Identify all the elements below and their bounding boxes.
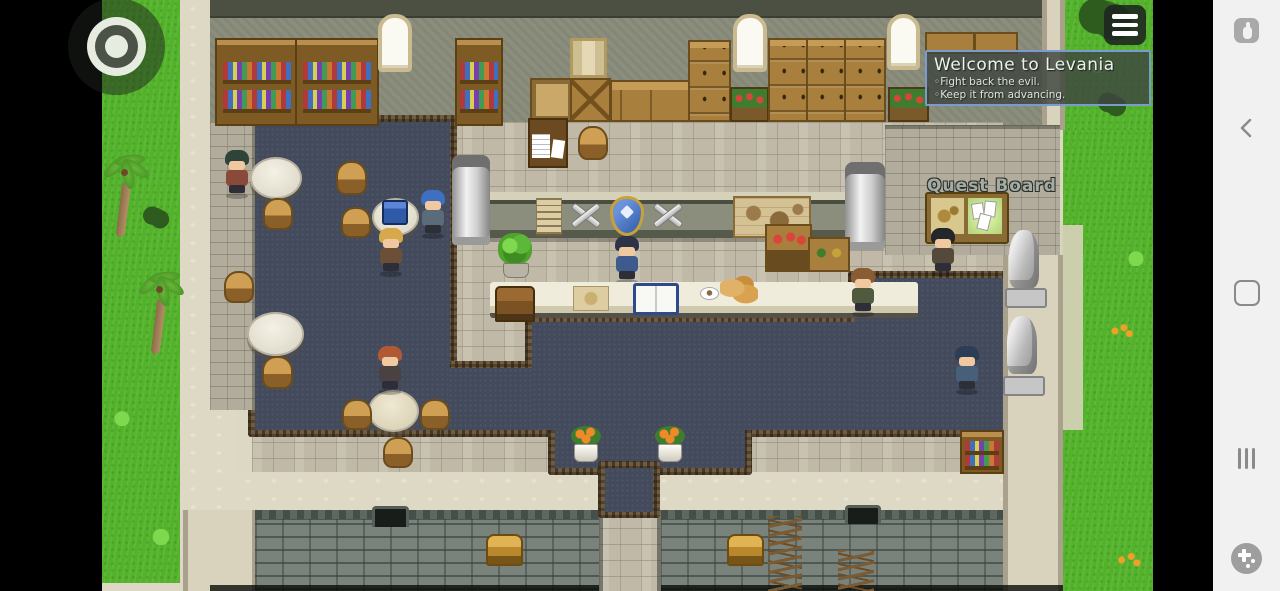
crate: [530, 78, 574, 122]
round-table: [247, 312, 304, 356]
npc-blue-soldier[interactable]: [418, 190, 448, 236]
stool: [262, 356, 293, 389]
counter-chest: [495, 286, 535, 322]
pot: [503, 263, 529, 278]
hamburger-menu-icon: [1112, 14, 1138, 19]
orange-flowers: [1106, 320, 1136, 342]
paper-sheet: [551, 139, 565, 158]
treasure-chest[interactable]: [727, 534, 764, 566]
palm-tree: [105, 155, 141, 241]
flower-box: [730, 87, 769, 122]
carpet: [448, 368, 532, 430]
game-viewport[interactable]: Quest Board Welcome to Levania ◦Fight ba…: [102, 0, 1153, 591]
crossed-swords: [648, 198, 688, 234]
message-popup-line: ◦Fight back the evil.: [934, 76, 1142, 88]
stool: [336, 161, 367, 195]
grass-tuft: [148, 525, 174, 545]
npc-redhead-patron[interactable]: [375, 346, 405, 392]
crossed-swords: [566, 198, 606, 234]
stool: [263, 198, 293, 230]
back-chevron-icon[interactable]: [1213, 112, 1280, 144]
south-wall-left: [183, 510, 257, 591]
joystick-center-dot: [105, 35, 128, 58]
open-shelf: [570, 38, 607, 78]
grass-tuft: [110, 408, 134, 426]
flower-pot: [653, 426, 686, 466]
stool: [224, 271, 254, 303]
bookshelf: [295, 38, 379, 126]
papers: [532, 134, 550, 158]
flower-box: [888, 87, 929, 122]
npc-brown-hair[interactable]: [848, 268, 878, 314]
bush: [498, 233, 532, 265]
touch-pointer-icon[interactable]: [1213, 15, 1280, 45]
npc-villager[interactable]: [222, 150, 252, 196]
stool: [341, 207, 371, 238]
message-popup-line: ◦Keep it from advancing.: [934, 89, 1142, 101]
palm-tree: [140, 272, 176, 358]
screen: Quest Board Welcome to Levania ◦Fight ba…: [0, 0, 1280, 591]
message-popup: Welcome to Levania ◦Fight back the evil.…: [925, 50, 1151, 106]
knight-statue: [1001, 316, 1045, 396]
dresser: [768, 38, 810, 122]
vines: [768, 516, 802, 591]
letterbox-right: [1153, 0, 1213, 591]
bookshelf: [215, 38, 299, 126]
knight-statue: [1003, 230, 1047, 308]
potted-bush: [498, 233, 532, 278]
round-table: [368, 390, 419, 432]
hamburger-menu-button[interactable]: [1104, 5, 1146, 45]
sand-strip: [1061, 225, 1083, 430]
stool: [342, 399, 372, 430]
treasure-chest[interactable]: [486, 534, 523, 566]
window: [733, 14, 767, 72]
quest-board-papers-panel: [968, 198, 1002, 234]
south-doorway: [599, 512, 661, 591]
wall-opening: [372, 506, 409, 527]
stool: [383, 437, 413, 468]
message-popup-title: Welcome to Levania: [934, 55, 1142, 75]
barn-door: [570, 78, 611, 122]
goods-crate: [765, 224, 812, 272]
item-shelf: [688, 40, 731, 122]
player-character[interactable]: [952, 346, 982, 392]
home-circle-icon[interactable]: [1213, 277, 1280, 309]
recents-bars-icon[interactable]: [1213, 442, 1280, 474]
npc-innkeeper[interactable]: [612, 236, 642, 282]
tablet-book: [382, 200, 408, 225]
pillar: [845, 162, 885, 250]
dresser: [806, 38, 848, 122]
round-table: [250, 157, 302, 199]
gamepad-icon[interactable]: [1213, 541, 1280, 575]
carpet: [532, 322, 855, 430]
teacup: [700, 287, 719, 300]
dresser: [844, 38, 886, 122]
system-navigation-bar: [1213, 0, 1280, 591]
window: [887, 14, 920, 70]
wall-opening: [845, 505, 881, 524]
carpet-passage: [605, 468, 653, 512]
npc-blonde-patron[interactable]: [376, 228, 406, 274]
drawer-cabinet: [610, 80, 693, 122]
bookshelf: [455, 38, 503, 126]
notice-scroll: [536, 198, 562, 234]
pillar: [452, 155, 490, 245]
stool: [420, 399, 450, 430]
virtual-joystick[interactable]: [68, 0, 165, 95]
vines: [838, 550, 874, 591]
npc-quest-reader[interactable]: [928, 228, 958, 274]
dark-bush: [143, 206, 169, 230]
floor-pocket-left: [180, 408, 237, 512]
counter-parchment: [573, 286, 609, 311]
flower-pot: [570, 426, 602, 466]
grass-tuft: [1124, 248, 1148, 266]
window: [378, 14, 412, 72]
bread-loaves: [720, 276, 758, 306]
orange-flowers: [1112, 548, 1144, 572]
stool: [578, 126, 608, 160]
open-book: [633, 283, 679, 315]
quest-paper: [976, 213, 992, 231]
quest-board-label: Quest Board: [902, 176, 1082, 196]
goods-crate: [808, 237, 850, 272]
small-bookshelf: [960, 430, 1004, 474]
